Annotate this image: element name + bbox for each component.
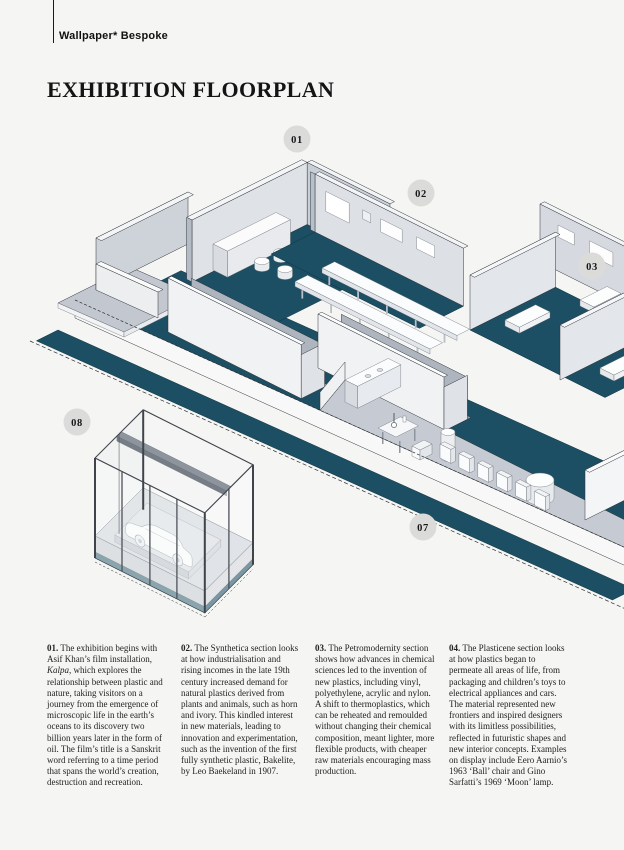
legend-number: 02. xyxy=(181,643,192,653)
svg-text:08: 08 xyxy=(71,418,83,429)
legend-columns: 01. The exhibition begins with Asif Khan… xyxy=(47,643,569,789)
callout-03: 03 xyxy=(579,253,606,280)
callout-01: 01 xyxy=(284,126,311,153)
callout-02: 02 xyxy=(408,180,435,207)
legend-number: 04. xyxy=(449,643,460,653)
svg-text:02: 02 xyxy=(415,189,427,200)
legend-number: 01. xyxy=(47,643,58,653)
callout-07: 07 xyxy=(410,514,437,541)
legend-column-04: 04. The Plasticene section looks at how … xyxy=(449,643,569,789)
legend-column-02: 02. The Synthetica section looks at how … xyxy=(181,643,301,789)
svg-text:07: 07 xyxy=(417,523,429,534)
svg-text:03: 03 xyxy=(586,262,598,273)
room-03-petromodernity xyxy=(470,202,624,398)
magazine-page: Wallpaper* Bespoke EXHIBITION FLOORPLAN xyxy=(0,0,624,850)
legend-number: 03. xyxy=(315,643,326,653)
legend-column-01: 01. The exhibition begins with Asif Khan… xyxy=(47,643,167,789)
callout-08: 08 xyxy=(64,409,91,436)
legend-column-03: 03. The Petromodernity section shows how… xyxy=(315,643,435,789)
svg-text:01: 01 xyxy=(291,135,303,146)
installation-title: Kalpa xyxy=(47,665,69,675)
section-08-glass-pavilion xyxy=(95,410,253,613)
